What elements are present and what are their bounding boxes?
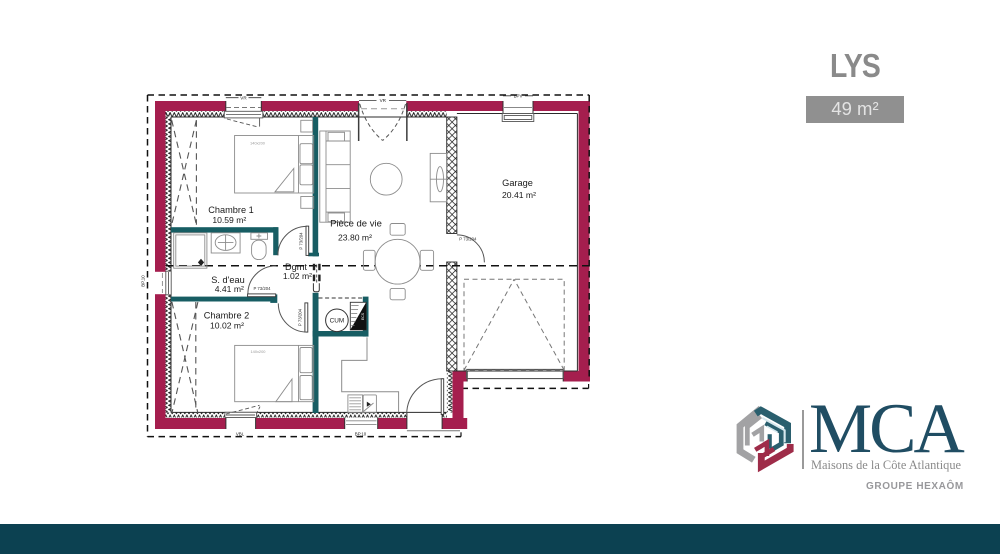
svg-text:VR: VR [240,96,247,101]
svg-text:140x200: 140x200 [250,140,266,145]
svg-text:23.80 m²: 23.80 m² [338,233,372,243]
svg-text:ECS: ECS [361,312,365,320]
svg-text:Chambre 2: Chambre 2 [204,310,249,320]
svg-text:BP.10: BP.10 [355,432,367,437]
svg-text:P 73/204: P 73/204 [253,286,271,291]
svg-text:P 73/204: P 73/204 [459,237,477,242]
svg-text:VBL: VBL [236,431,245,436]
svg-text:VR: VR [380,98,387,103]
svg-text:10.59 m²: 10.59 m² [212,215,246,225]
svg-text:Pièce de vie: Pièce de vie [330,219,382,230]
svg-text:140x200: 140x200 [251,349,267,354]
svg-text:1.02 m²: 1.02 m² [283,271,312,281]
svg-text:CUM: CUM [330,318,345,325]
svg-text:BPV: BPV [514,93,523,98]
svg-text:Chambre 1: Chambre 1 [208,205,253,215]
svg-text:Garage: Garage [502,178,533,188]
svg-text:P 73/204: P 73/204 [298,308,303,326]
svg-text:20.41 m²: 20.41 m² [502,190,536,200]
svg-text:10.02 m²: 10.02 m² [210,321,244,331]
svg-text:BP.10: BP.10 [141,275,146,287]
svg-text:P 73/204: P 73/204 [299,232,304,250]
svg-text:4.41 m²: 4.41 m² [215,284,244,294]
